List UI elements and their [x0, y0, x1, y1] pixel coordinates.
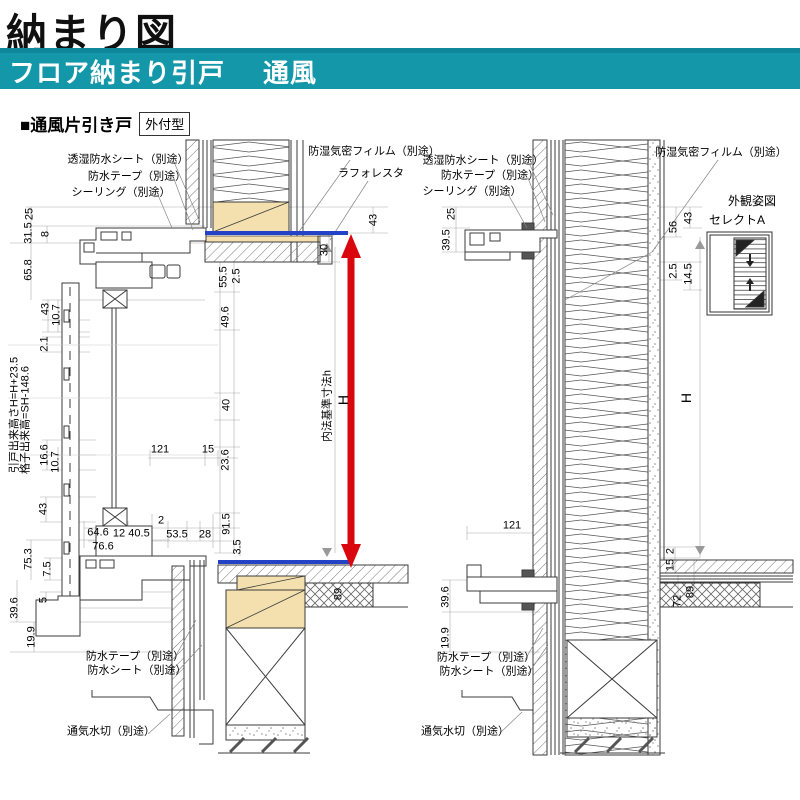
- drawing-area: 透湿防水シート（別途）防水テープ（別途）シーリング（別途）防湿気密フィルム（別途…: [0, 0, 800, 800]
- red-height-arrow: [341, 234, 361, 568]
- detail-drawing-page: 納まり図 フロア納まり引戸 通風 ■通風片引き戸 外付型: [0, 0, 800, 800]
- section-drawing-linework: [0, 0, 800, 800]
- appearance-elevation: [707, 232, 772, 315]
